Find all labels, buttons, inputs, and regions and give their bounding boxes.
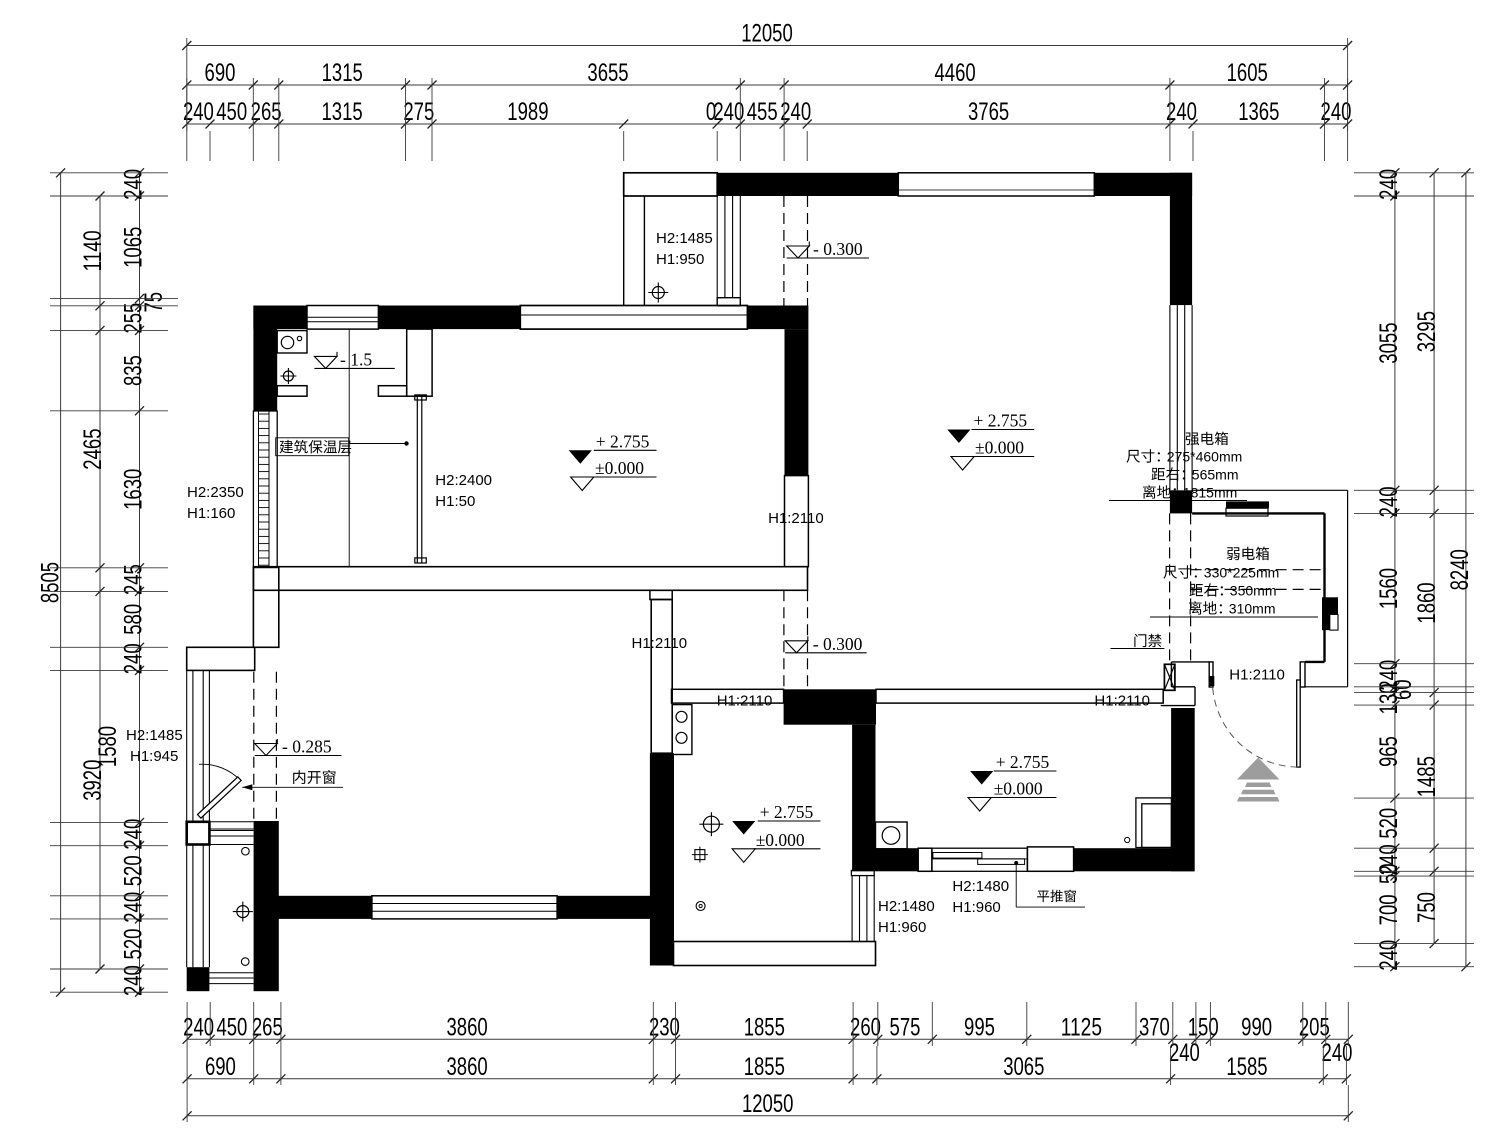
svg-text:1065: 1065 [120, 227, 148, 268]
svg-text:350mm: 350mm [1230, 583, 1277, 599]
svg-text:1580: 1580 [94, 726, 122, 767]
svg-text:275*460mm: 275*460mm [1167, 449, 1243, 465]
svg-text:330*225mm: 330*225mm [1204, 565, 1280, 581]
svg-text:455: 455 [747, 98, 778, 126]
svg-text:H1:2110: H1:2110 [717, 693, 773, 710]
svg-text:60: 60 [1389, 679, 1417, 700]
svg-text:265: 265 [252, 1013, 283, 1041]
svg-text:12050: 12050 [742, 1090, 794, 1118]
svg-text:4460: 4460 [935, 59, 976, 87]
svg-text:240: 240 [120, 643, 148, 674]
svg-text:150: 150 [1188, 1013, 1219, 1041]
svg-text:580: 580 [120, 604, 148, 635]
svg-text:+ 2.755: + 2.755 [760, 802, 814, 822]
svg-text:75: 75 [140, 292, 168, 313]
svg-text:240: 240 [1375, 169, 1403, 200]
svg-text:520: 520 [1375, 808, 1403, 839]
svg-text:520: 520 [120, 855, 148, 886]
svg-text:- 1.5: - 1.5 [340, 350, 372, 370]
svg-text:H1:160: H1:160 [187, 505, 235, 522]
svg-text:H1:950: H1:950 [656, 251, 704, 268]
svg-text:275: 275 [403, 98, 434, 126]
svg-text:+ 2.755: + 2.755 [974, 411, 1028, 431]
svg-text:310mm: 310mm [1229, 601, 1276, 617]
svg-text:H2:2350: H2:2350 [187, 484, 244, 501]
svg-text:1815mm: 1815mm [1183, 485, 1237, 501]
svg-text:- 0.300: - 0.300 [813, 239, 863, 259]
svg-text:3860: 3860 [447, 1013, 488, 1041]
svg-text:240: 240 [120, 169, 148, 200]
svg-text:990: 990 [1241, 1013, 1272, 1041]
svg-text:565mm: 565mm [1192, 467, 1239, 483]
svg-text:H1:2110: H1:2110 [1094, 693, 1150, 710]
svg-text:1585: 1585 [1226, 1053, 1267, 1081]
svg-text:H1:50: H1:50 [435, 493, 475, 510]
svg-text:240: 240 [1166, 98, 1197, 126]
svg-text:240: 240 [1375, 940, 1403, 971]
svg-text:H2:1480: H2:1480 [952, 878, 1009, 895]
svg-text:50: 50 [1375, 863, 1403, 884]
svg-text:1315: 1315 [322, 59, 363, 87]
svg-text:H1:2110: H1:2110 [1229, 667, 1285, 684]
svg-text:260: 260 [850, 1013, 881, 1041]
svg-text:+ 2.755: + 2.755 [596, 431, 650, 451]
svg-text:H2:2400: H2:2400 [435, 472, 492, 489]
svg-text:1989: 1989 [507, 98, 548, 126]
svg-text:3765: 3765 [968, 98, 1009, 126]
svg-text:240: 240 [780, 98, 811, 126]
svg-text:995: 995 [964, 1013, 995, 1041]
svg-text:965: 965 [1375, 736, 1403, 767]
svg-text:520: 520 [120, 929, 148, 960]
svg-text:1125: 1125 [1061, 1013, 1102, 1041]
svg-text:H1:2110: H1:2110 [768, 510, 824, 527]
svg-text:240: 240 [1375, 486, 1403, 517]
svg-text:0: 0 [706, 98, 716, 126]
svg-text:1140: 1140 [79, 230, 107, 271]
svg-text:450: 450 [216, 1013, 247, 1041]
svg-text:H1:960: H1:960 [878, 919, 926, 936]
svg-text:1605: 1605 [1227, 59, 1268, 87]
svg-text:240: 240 [120, 819, 148, 850]
svg-text:1315: 1315 [322, 98, 363, 126]
svg-text:240: 240 [713, 98, 744, 126]
svg-text:±0.000: ±0.000 [756, 830, 805, 850]
svg-text:±0.000: ±0.000 [994, 779, 1043, 799]
svg-text:12050: 12050 [741, 20, 793, 48]
svg-text:700: 700 [1375, 894, 1403, 925]
svg-text:240: 240 [1321, 98, 1352, 126]
svg-text:±0.000: ±0.000 [595, 458, 644, 478]
svg-text:240: 240 [183, 1013, 214, 1041]
svg-text:1860: 1860 [1413, 582, 1441, 623]
svg-text:H2:1485: H2:1485 [656, 230, 713, 247]
svg-text:370: 370 [1139, 1013, 1170, 1041]
svg-text:265: 265 [251, 98, 282, 126]
svg-text:3860: 3860 [447, 1053, 488, 1081]
svg-text:8240: 8240 [1446, 549, 1474, 590]
svg-text:H2:1485: H2:1485 [126, 727, 183, 744]
svg-text:1855: 1855 [744, 1013, 785, 1041]
svg-text:H1:2110: H1:2110 [632, 635, 688, 652]
svg-text:205: 205 [1299, 1013, 1330, 1041]
svg-text:450: 450 [216, 98, 247, 126]
svg-text:- 0.300: - 0.300 [813, 634, 863, 654]
svg-text:±0.000: ±0.000 [975, 438, 1024, 458]
svg-text:3065: 3065 [1003, 1053, 1044, 1081]
svg-text:690: 690 [205, 59, 236, 87]
svg-text:240: 240 [183, 98, 214, 126]
svg-text:2465: 2465 [79, 429, 107, 470]
svg-text:H2:1480: H2:1480 [878, 898, 935, 915]
svg-text:3655: 3655 [587, 59, 628, 87]
svg-text:H1:960: H1:960 [952, 899, 1000, 916]
svg-text:H1:945: H1:945 [130, 748, 178, 765]
svg-text:1560: 1560 [1375, 568, 1403, 609]
svg-text:3055: 3055 [1375, 323, 1403, 364]
svg-text:1630: 1630 [120, 469, 148, 510]
svg-text:835: 835 [120, 355, 148, 386]
svg-text:245: 245 [120, 564, 148, 595]
svg-text:1365: 1365 [1238, 98, 1279, 126]
svg-text:575: 575 [890, 1013, 921, 1041]
svg-text:240: 240 [120, 892, 148, 923]
svg-text:240: 240 [1169, 1039, 1200, 1067]
svg-text:690: 690 [205, 1053, 236, 1081]
svg-text:3295: 3295 [1413, 311, 1441, 352]
svg-text:1855: 1855 [744, 1053, 785, 1081]
svg-text:240: 240 [120, 965, 148, 996]
svg-text:1485: 1485 [1413, 756, 1441, 797]
svg-text:750: 750 [1413, 892, 1441, 923]
svg-text:+ 2.755: + 2.755 [996, 752, 1050, 772]
svg-text:- 0.285: - 0.285 [282, 737, 332, 757]
